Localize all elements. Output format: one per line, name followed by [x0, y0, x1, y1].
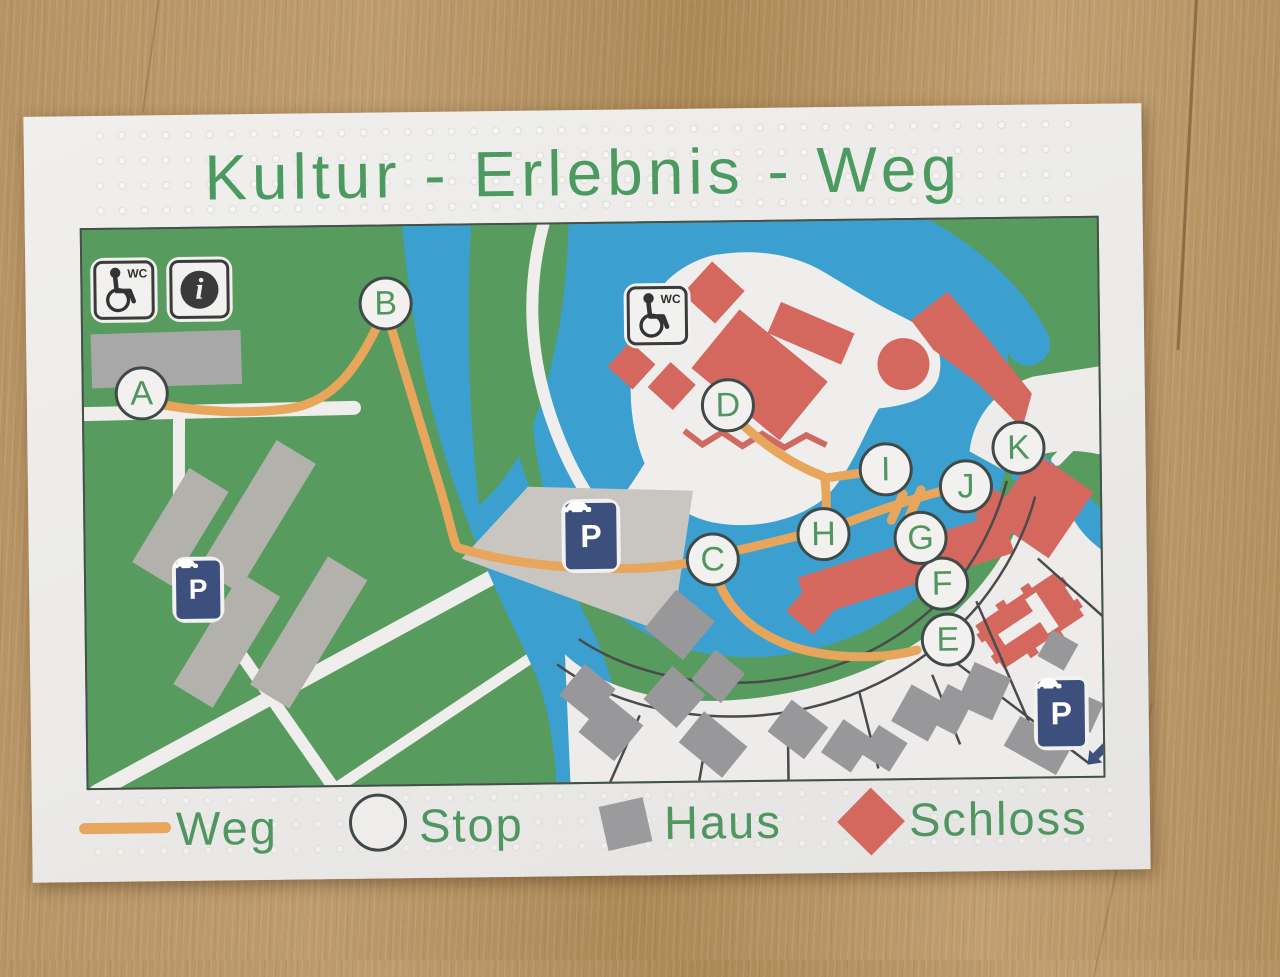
wheelchair-wc-sign: WC	[90, 257, 158, 323]
legend-haus-swatch	[599, 797, 653, 851]
parking-sign-main: P	[561, 499, 621, 574]
legend-weg-label: Weg	[176, 800, 278, 856]
wood-seam	[142, 0, 160, 113]
legend: Weg Stop Haus Schloss	[23, 103, 1141, 117]
parking-p: P	[580, 521, 602, 550]
legend-haus-label: Haus	[664, 794, 782, 850]
parking-p: P	[189, 577, 208, 602]
map-area: A B C D E F G H I J K WC i	[80, 216, 1106, 790]
car-icon	[1033, 676, 1063, 690]
wheelchair-icon	[630, 289, 687, 342]
info-icon: i	[180, 270, 218, 308]
building-strip	[91, 330, 243, 388]
legend-stop-swatch	[349, 793, 408, 852]
parking-sign-southeast: P	[1033, 676, 1089, 751]
legend-stop-label: Stop	[419, 797, 524, 853]
photo-of-tactile-map: { "title": "Kultur - Erlebnis - Weg", "m…	[0, 0, 1280, 960]
parking-p: P	[1050, 699, 1072, 728]
car-icon	[561, 499, 593, 514]
exit-arrow-icon	[1082, 741, 1105, 773]
legend-schloss-swatch	[837, 788, 905, 856]
map-title: Kultur - Erlebnis - Weg	[24, 129, 1143, 217]
info-sign: i	[166, 256, 233, 322]
tactile-map-sheet: Kultur - Erlebnis - Weg	[23, 103, 1150, 883]
legend-schloss-label: Schloss	[909, 790, 1088, 847]
wheelchair-icon	[96, 263, 153, 316]
wood-seam	[1177, 0, 1199, 350]
parking-sign-west: P	[172, 556, 225, 623]
legend-weg-swatch	[79, 822, 171, 834]
car-icon	[172, 557, 200, 570]
wheelchair-wc-sign-castle: WC	[623, 283, 691, 349]
